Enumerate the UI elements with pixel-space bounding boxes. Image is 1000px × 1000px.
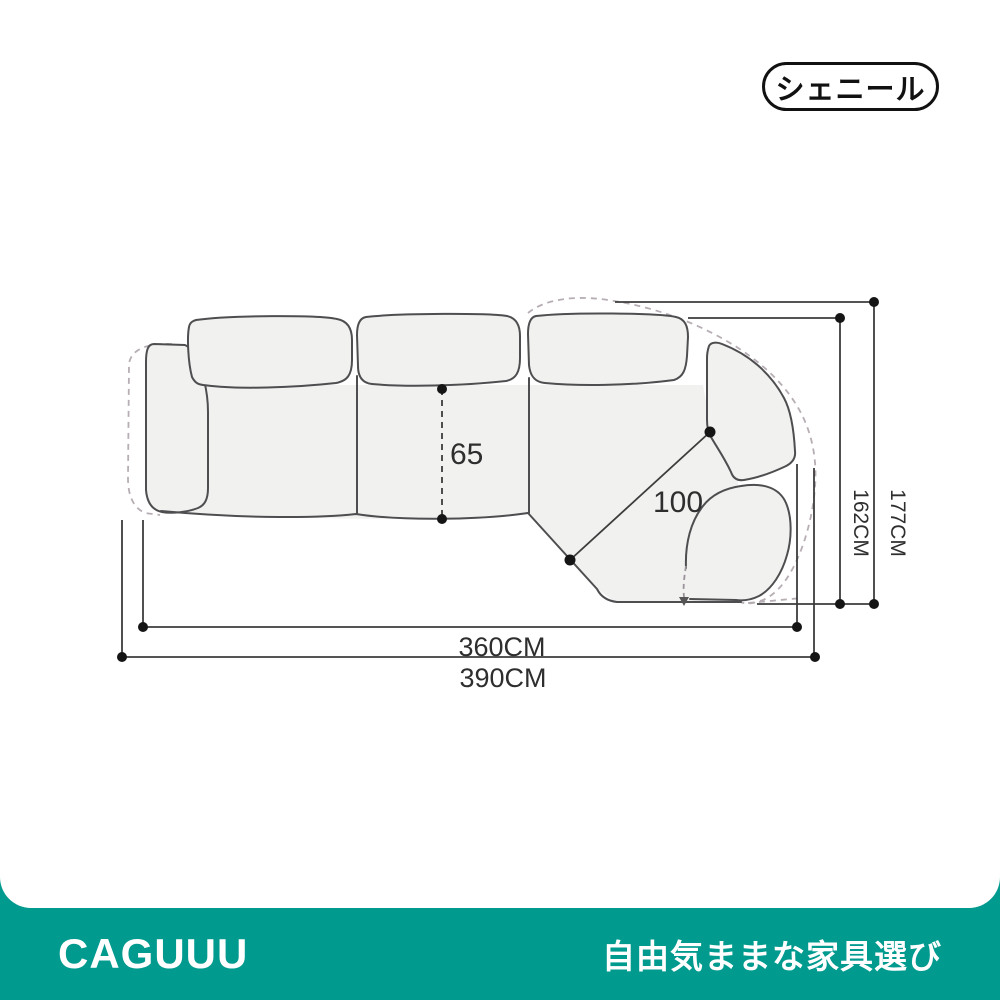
- footer: CAGUUU 自由気ままな家具選び: [0, 908, 1000, 1000]
- label-corner-seat-width: 100: [653, 486, 703, 519]
- sofa-body: [148, 385, 738, 602]
- brand-logo: CAGUUU: [58, 930, 248, 978]
- dot: [437, 384, 447, 394]
- footer-curve-left: [0, 877, 38, 908]
- dot: [117, 652, 127, 662]
- sofa-dimension-diagram: 65 100 162CM 177CM 360CM 390CM: [0, 0, 1000, 1000]
- footer-curve-left-mask: [0, 877, 38, 908]
- footer-tagline: 自由気ままな家具選び: [602, 930, 942, 978]
- dot: [869, 297, 879, 307]
- dot: [869, 599, 879, 609]
- back-cushion-3: [528, 313, 688, 385]
- dot: [810, 652, 820, 662]
- label-depth-body: 162CM: [849, 489, 872, 557]
- dot: [835, 599, 845, 609]
- footer-curve-right: [962, 877, 1000, 908]
- label-width-total: 390CM: [459, 663, 546, 693]
- dot: [835, 313, 845, 323]
- label-seat-width: 65: [450, 438, 483, 471]
- footer-curve-right-mask: [962, 877, 1000, 908]
- page: シェニール: [0, 0, 1000, 1000]
- dot: [565, 555, 576, 566]
- dot: [705, 427, 716, 438]
- back-cushion-1: [188, 316, 352, 388]
- ghost-bottom-segment: [748, 598, 802, 603]
- label-depth-total: 177CM: [886, 489, 909, 557]
- dot: [792, 622, 802, 632]
- label-width-body: 360CM: [458, 632, 545, 662]
- dot: [138, 622, 148, 632]
- dot: [437, 514, 447, 524]
- back-cushion-2: [357, 314, 520, 386]
